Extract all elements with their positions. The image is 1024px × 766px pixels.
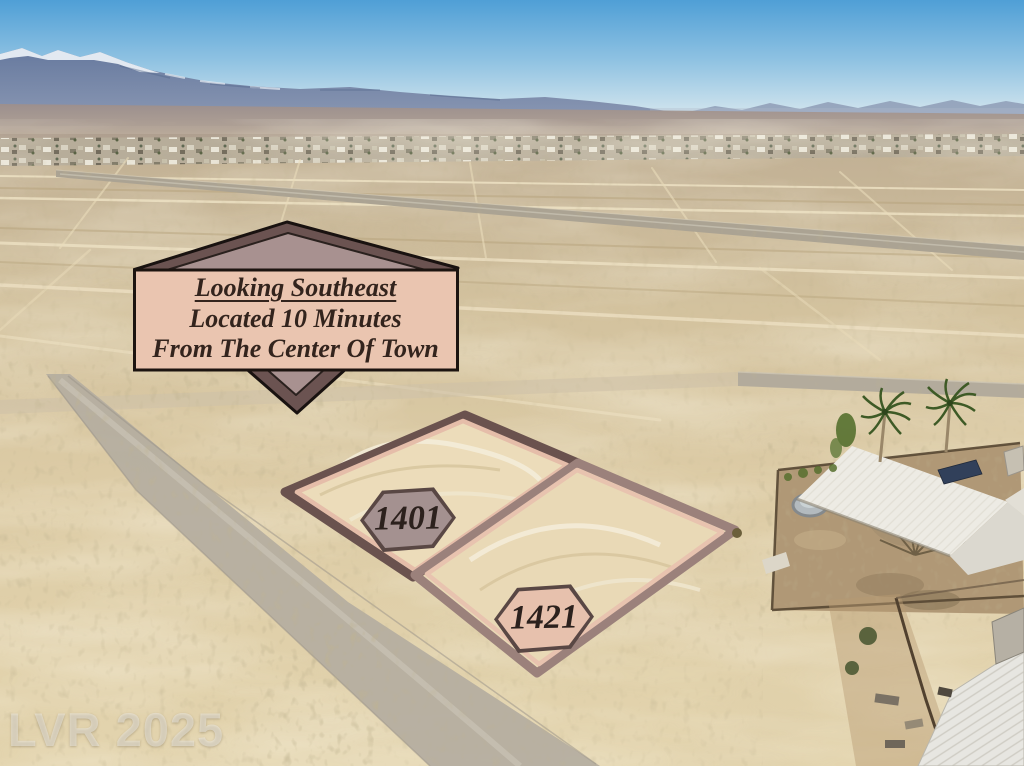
aerial-photo: Looking Southeast Located 10 Minutes Fro… [0, 0, 1024, 766]
lot-badge-1401-fill: 1401 [364, 490, 452, 548]
info-banner: Looking Southeast Located 10 Minutes Fro… [133, 220, 460, 415]
lot-1401-label: 1401 [374, 499, 443, 538]
watermark: LVR 2025 [8, 702, 224, 757]
lot-badge-1421-fill: 1421 [498, 587, 590, 649]
banner-line-3: From The Center Of Town [152, 334, 439, 365]
banner-line-2: Located 10 Minutes [189, 304, 401, 335]
banner-text: Looking Southeast Located 10 Minutes Fro… [135, 270, 456, 368]
banner-line-1: Looking Southeast [195, 273, 397, 304]
lot-1421-label: 1421 [510, 598, 579, 637]
